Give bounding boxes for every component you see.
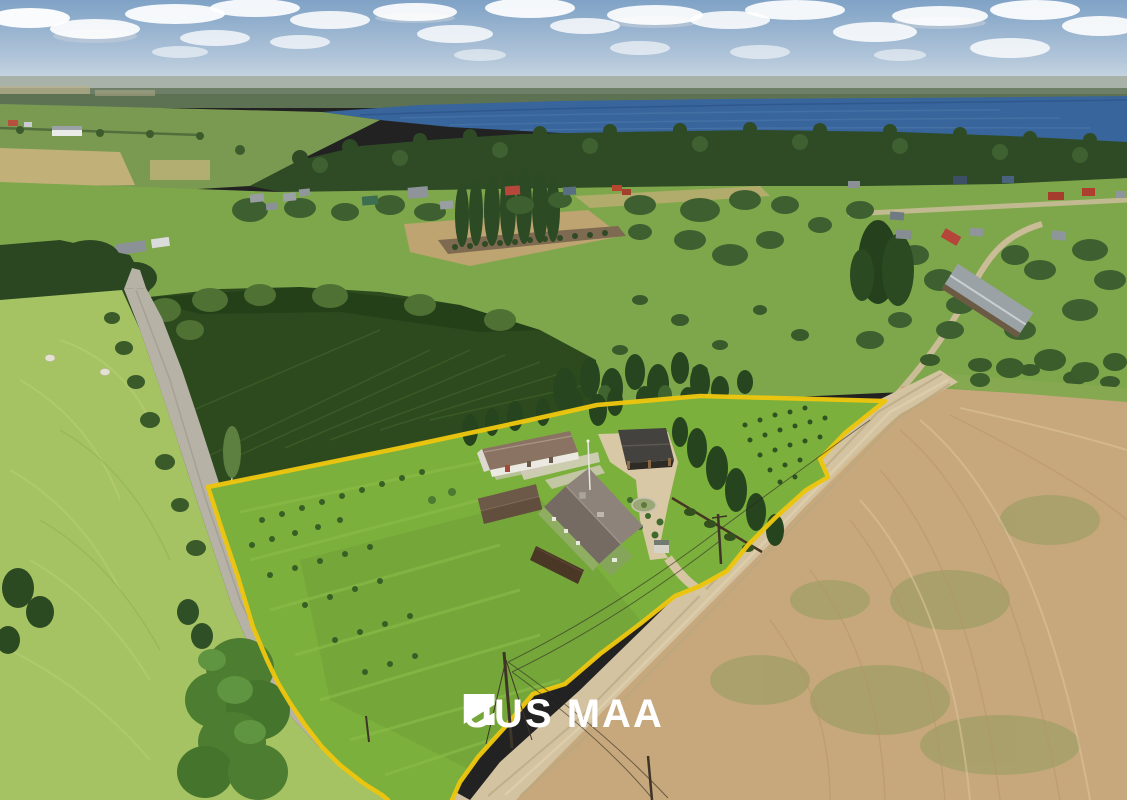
aerial-photo: UUS MAA xyxy=(0,0,1127,800)
landscape-scene xyxy=(0,0,1127,800)
gate-shed xyxy=(654,540,669,553)
carport xyxy=(618,428,674,470)
chimney xyxy=(579,492,586,499)
